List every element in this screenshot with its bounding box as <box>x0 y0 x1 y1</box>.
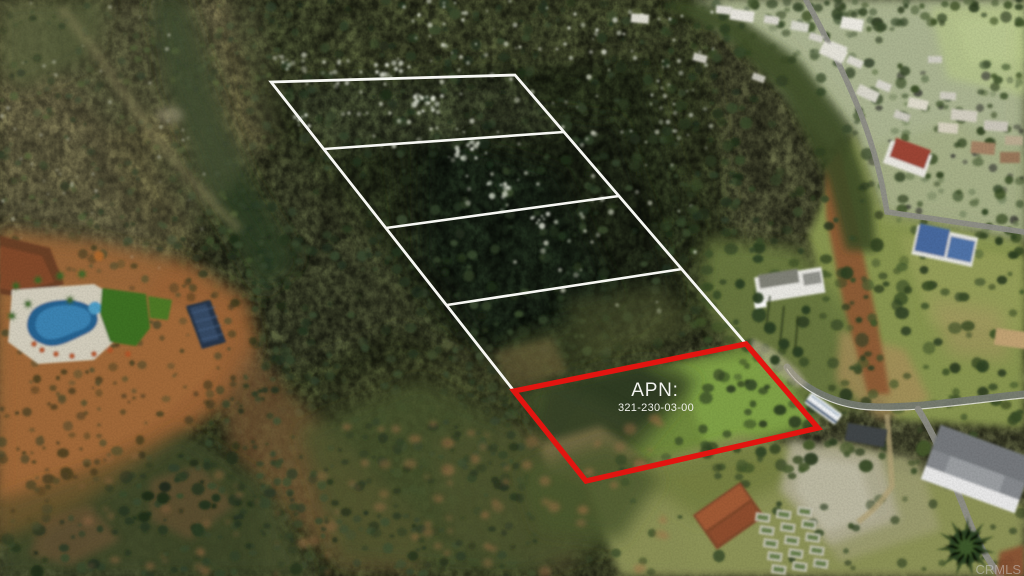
svg-text:CRMLS: CRMLS <box>975 562 1021 576</box>
svg-text:321-230-03-00: 321-230-03-00 <box>618 402 694 414</box>
svg-text:APN:: APN: <box>631 380 679 401</box>
